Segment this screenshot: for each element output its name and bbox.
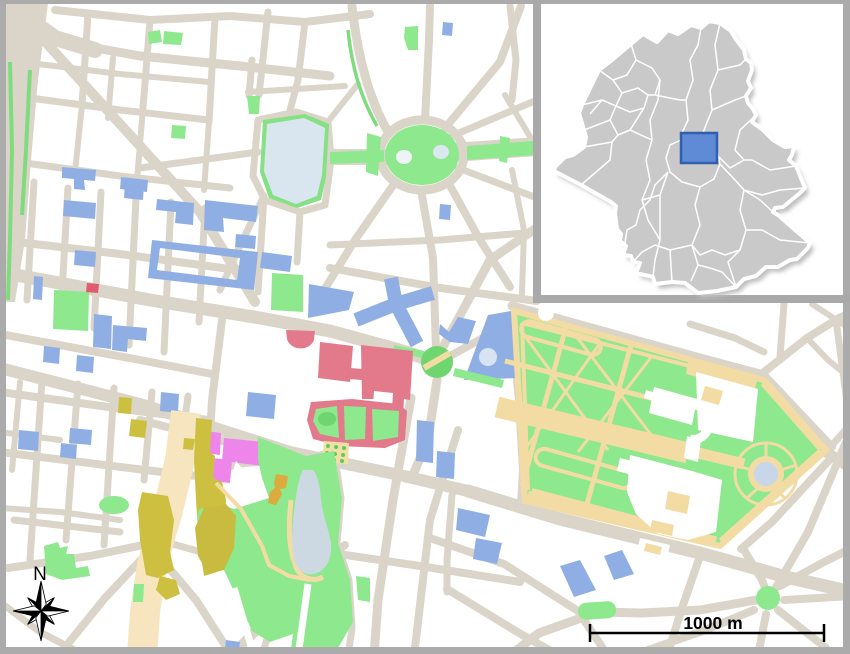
svg-text:1000 m: 1000 m — [683, 613, 742, 633]
svg-text:N: N — [33, 564, 47, 585]
